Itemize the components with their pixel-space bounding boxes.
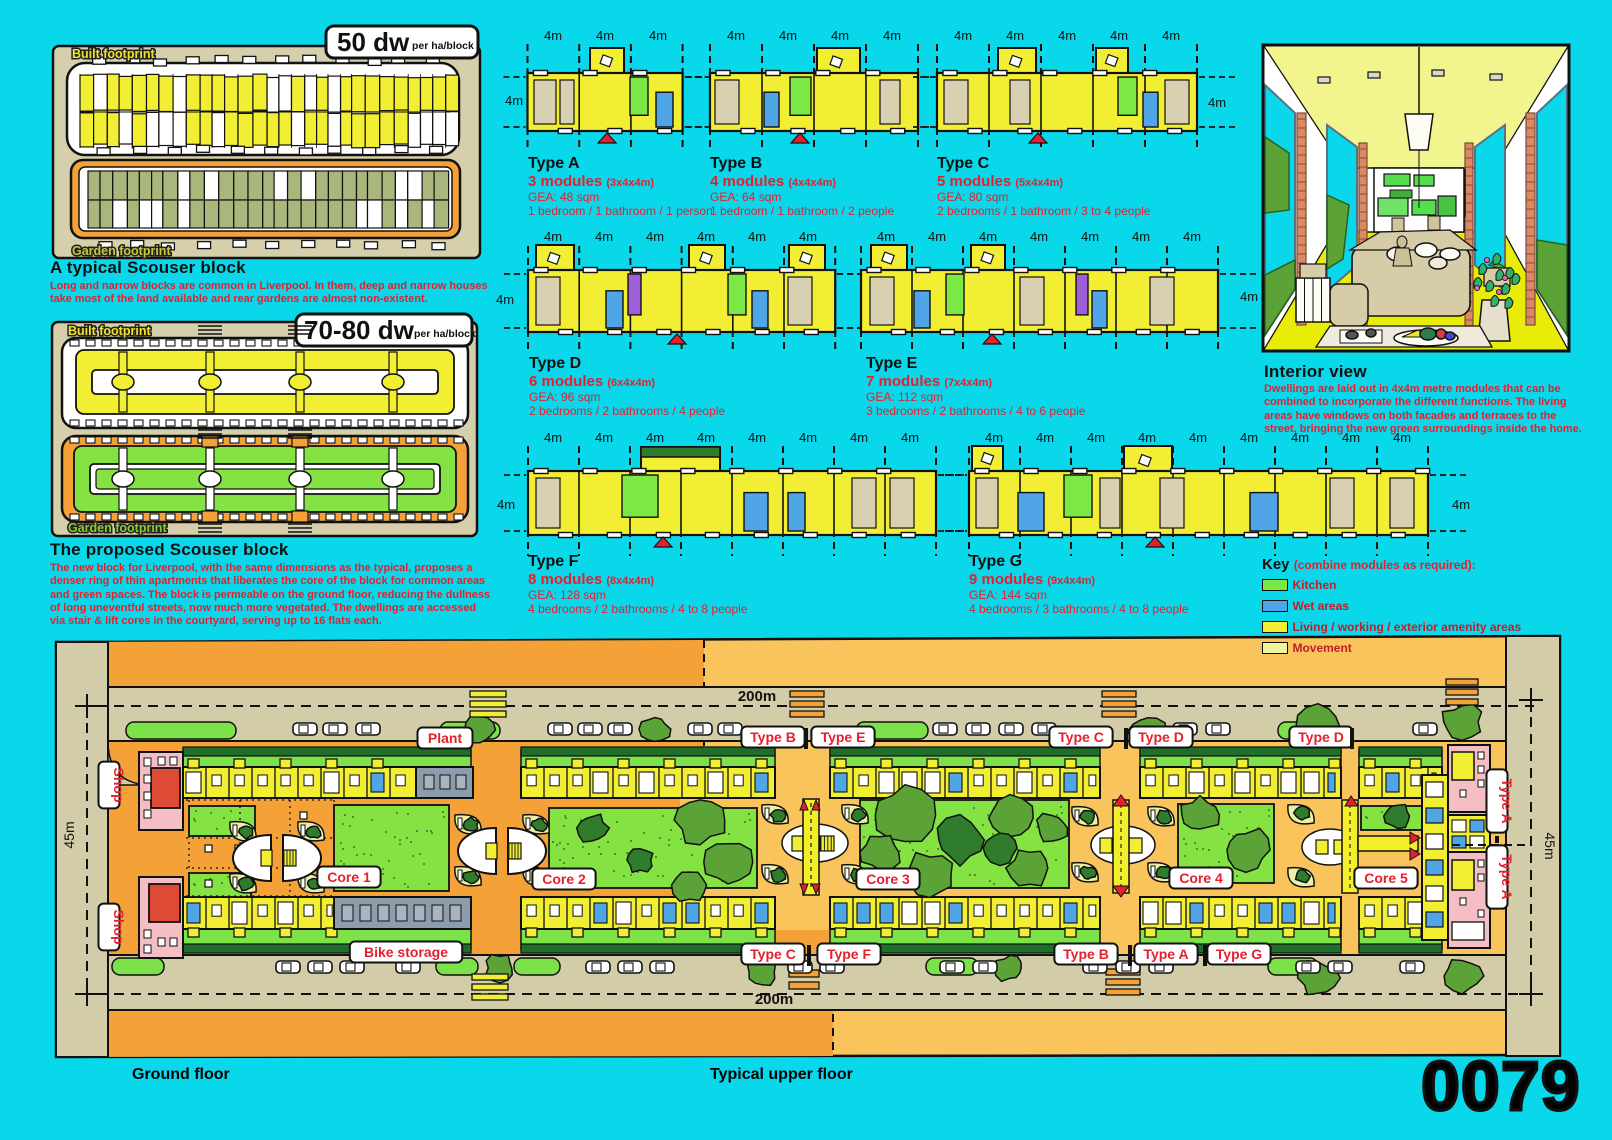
svg-text:Plant: Plant <box>428 730 463 746</box>
svg-text:4m: 4m <box>646 229 664 244</box>
svg-text:4m: 4m <box>1030 229 1048 244</box>
svg-text:4m: 4m <box>831 28 849 43</box>
svg-text:4m: 4m <box>1240 430 1258 445</box>
svg-text:4m: 4m <box>799 229 817 244</box>
svg-text:4m: 4m <box>1162 28 1180 43</box>
svg-text:4m: 4m <box>596 28 614 43</box>
svg-text:per ha/block: per ha/block <box>412 40 474 52</box>
svg-text:4m: 4m <box>1132 229 1150 244</box>
svg-text:4m: 4m <box>985 430 1003 445</box>
svg-text:Type C: Type C <box>1058 729 1104 745</box>
svg-text:Type F: Type F <box>827 946 872 962</box>
svg-text:Type A: Type A <box>1499 854 1515 899</box>
svg-text:70-80 dw: 70-80 dw <box>304 315 415 345</box>
svg-text:per ha/block: per ha/block <box>414 328 476 340</box>
svg-text:4m: 4m <box>901 430 919 445</box>
svg-text:Core 1: Core 1 <box>327 869 371 885</box>
svg-text:Shop: Shop <box>111 910 127 945</box>
svg-text:Shop: Shop <box>111 768 127 803</box>
svg-text:4m: 4m <box>1087 430 1105 445</box>
svg-text:Bike storage: Bike storage <box>364 944 448 960</box>
svg-text:4m: 4m <box>1138 430 1156 445</box>
svg-text:4m: 4m <box>1036 430 1054 445</box>
svg-text:4m: 4m <box>928 229 946 244</box>
svg-text:4m: 4m <box>1240 289 1258 304</box>
svg-text:4m: 4m <box>748 430 766 445</box>
svg-text:4m: 4m <box>544 229 562 244</box>
svg-text:4m: 4m <box>544 28 562 43</box>
svg-text:4m: 4m <box>727 28 745 43</box>
svg-text:Core 3: Core 3 <box>866 871 910 887</box>
svg-text:4m: 4m <box>979 229 997 244</box>
svg-text:4m: 4m <box>1081 229 1099 244</box>
svg-text:Type G: Type G <box>1216 946 1263 962</box>
svg-text:4m: 4m <box>1058 28 1076 43</box>
svg-text:4m: 4m <box>646 430 664 445</box>
svg-text:Type E: Type E <box>821 729 866 745</box>
svg-text:4m: 4m <box>1452 497 1470 512</box>
svg-text:4m: 4m <box>1183 229 1201 244</box>
svg-text:200m: 200m <box>755 991 793 1008</box>
svg-text:4m: 4m <box>544 430 562 445</box>
svg-text:4m: 4m <box>595 430 613 445</box>
svg-text:Core 4: Core 4 <box>1179 870 1223 886</box>
svg-text:Type D: Type D <box>1138 729 1184 745</box>
svg-text:200m: 200m <box>738 688 776 705</box>
svg-text:Type B: Type B <box>1063 946 1109 962</box>
svg-text:4m: 4m <box>595 229 613 244</box>
svg-text:4m: 4m <box>1006 28 1024 43</box>
svg-text:4m: 4m <box>850 430 868 445</box>
svg-text:4m: 4m <box>954 28 972 43</box>
svg-text:4m: 4m <box>505 93 523 108</box>
svg-text:Garden footprint: Garden footprint <box>72 244 171 258</box>
svg-text:Core 2: Core 2 <box>542 871 586 887</box>
svg-text:Type C: Type C <box>750 946 796 962</box>
svg-text:4m: 4m <box>799 430 817 445</box>
svg-text:4m: 4m <box>1189 430 1207 445</box>
svg-text:Built footprint: Built footprint <box>68 324 151 338</box>
svg-text:4m: 4m <box>649 28 667 43</box>
svg-text:4m: 4m <box>697 430 715 445</box>
svg-text:4m: 4m <box>779 28 797 43</box>
svg-text:Core 5: Core 5 <box>1364 870 1408 886</box>
svg-text:50 dw: 50 dw <box>337 27 410 57</box>
svg-text:4m: 4m <box>697 229 715 244</box>
svg-text:4m: 4m <box>748 229 766 244</box>
svg-text:45m: 45m <box>61 821 77 848</box>
svg-text:4m: 4m <box>883 28 901 43</box>
svg-text:Type D: Type D <box>1298 729 1344 745</box>
svg-text:4m: 4m <box>497 497 515 512</box>
svg-text:4m: 4m <box>877 229 895 244</box>
svg-text:Type A: Type A <box>1143 946 1188 962</box>
svg-text:4m: 4m <box>1110 28 1128 43</box>
svg-text:4m: 4m <box>1208 95 1226 110</box>
svg-text:45m: 45m <box>1542 832 1558 859</box>
svg-text:Type B: Type B <box>750 729 796 745</box>
svg-text:4m: 4m <box>496 292 514 307</box>
svg-text:Type A: Type A <box>1499 778 1515 823</box>
svg-text:Garden footprint: Garden footprint <box>68 521 167 535</box>
svg-text:Built footprint: Built footprint <box>72 47 155 61</box>
